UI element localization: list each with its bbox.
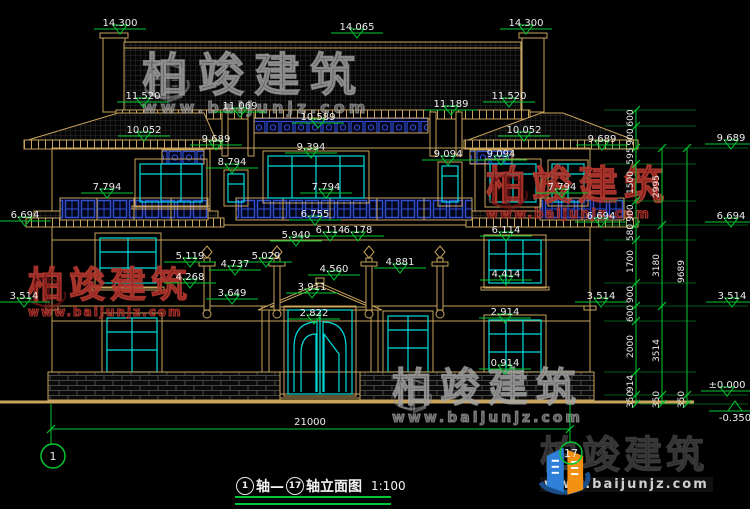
elevation-value: 11.069 — [223, 101, 258, 112]
dim-chain: 299531803514350 — [652, 144, 666, 408]
dim-chain-label: 3180 — [652, 254, 662, 277]
elevation-marker: 14.300 — [500, 18, 552, 34]
drawing-scale: 1:100 — [371, 479, 406, 493]
elevation-value: 11.520 — [492, 91, 527, 102]
elevation-value: -0.350 — [719, 413, 750, 424]
overall-dimension-value: 21000 — [294, 417, 326, 428]
elevation-marker: 8.794 — [206, 157, 258, 173]
elevation-value: 3.514 — [718, 291, 747, 302]
title-text-suffix: 轴立面图 — [306, 476, 362, 496]
elevation-marker: 9.394 — [285, 142, 337, 158]
elevation-value: 7.794 — [312, 182, 341, 193]
elevation-value: 14.300 — [103, 18, 138, 29]
elevation-value: 3.514 — [587, 291, 616, 302]
elevation-marker: 3.514 — [706, 291, 750, 307]
dim-chain-label: 3514 — [652, 339, 662, 362]
elevation-value: 6.114 — [492, 225, 521, 236]
elevation-value: 6.694 — [717, 211, 746, 222]
elevation-value: 5.119 — [176, 251, 205, 262]
elevation-marker: -0.350 — [709, 401, 750, 424]
dim-chain-label: 350 — [626, 391, 636, 408]
elevation-marker: 3.649 — [206, 288, 258, 304]
dim-chain-label: 900 — [626, 204, 636, 221]
elevation-value: 10.589 — [301, 112, 336, 123]
elevation-marker: 3.514 — [575, 291, 627, 307]
elevation-value: 3.649 — [218, 288, 247, 299]
elevation-value: 10.052 — [507, 125, 542, 136]
elevation-value: 7.794 — [548, 182, 577, 193]
elevation-marker: 11.520 — [483, 91, 535, 107]
axis-bubble-start: 1 — [236, 477, 254, 495]
elevation-value: 9.094 — [434, 149, 463, 160]
elevation-value: 5.940 — [282, 230, 311, 241]
elevation-value: ±0.000 — [708, 380, 745, 391]
elevation-marker: 6.694 — [705, 211, 750, 227]
elevation-value: 7.794 — [93, 182, 122, 193]
elevation-value: 4.268 — [176, 272, 205, 283]
dim-chain: 9689350 — [677, 144, 691, 408]
elevation-marker: 6.694 — [575, 211, 627, 227]
dim-chain: 600900595150090058017009006002000914350 — [626, 106, 640, 408]
elevation-value: 4.414 — [492, 269, 521, 280]
dim-chain-label: 914 — [626, 375, 636, 392]
elevation-value: 2.822 — [300, 308, 329, 319]
elevation-marker: 4.881 — [374, 257, 426, 273]
elevation-value: 5.029 — [252, 251, 281, 262]
elevation-marker: 9.689 — [705, 133, 750, 149]
dim-chain-label: 1500 — [626, 171, 636, 194]
elevation-marker: 2.822 — [288, 308, 340, 324]
elevation-marker: 7.794 — [300, 182, 352, 198]
dim-chain-label: 9689 — [677, 260, 687, 283]
elevation-value: 14.300 — [509, 18, 544, 29]
axis-bubble-label: 1 — [50, 450, 57, 463]
elevation-value: 3.911 — [298, 282, 327, 293]
title-underline — [235, 496, 391, 505]
elevation-marker: 3.514 — [0, 291, 50, 307]
axis-bubble-label: 17 — [564, 447, 578, 460]
dim-chain-label: 2995 — [652, 175, 662, 198]
elevation-value: 9.689 — [202, 134, 231, 145]
elevation-marker: 0.914 — [479, 358, 531, 374]
elevation-value: 9.394 — [297, 142, 326, 153]
elevation-marker: 6.694 — [0, 210, 51, 226]
elevation-value: 11.520 — [126, 91, 161, 102]
elevation-marker: 11.069 — [214, 101, 266, 117]
dim-chain-label: 600 — [626, 109, 636, 126]
elevation-marker: 7.794 — [81, 182, 133, 198]
elevation-value: 11.189 — [434, 99, 469, 110]
dim-chain-label: 595 — [626, 147, 636, 164]
elevation-value: 14.065 — [340, 22, 375, 33]
dim-chain-label: 600 — [626, 305, 636, 322]
axis-bubble: 17 — [560, 404, 582, 464]
elevation-marker: 9.689 — [576, 134, 628, 150]
elevation-value: 9.689 — [717, 133, 746, 144]
elevation-marker: 10.589 — [292, 112, 344, 128]
elevation-marker: ±0.000 — [701, 380, 750, 396]
dim-chain-label: 900 — [626, 128, 636, 145]
elevation-value: 4.737 — [221, 259, 250, 270]
elevation-marker: 9.094 — [422, 149, 474, 165]
elevation-marker: 9.689 — [190, 134, 242, 150]
elevation-marker: 10.052 — [118, 125, 170, 141]
elevation-marker: 6.755 — [289, 209, 341, 225]
elevation-marker: 6.114 — [480, 225, 532, 241]
elevation-marker: 9.094 — [475, 149, 527, 165]
elevation-value: 4.881 — [386, 257, 415, 268]
elevation-value: 9.689 — [588, 134, 617, 145]
dim-chain-label: 350 — [652, 391, 662, 408]
axis-bubble: 1 — [41, 404, 65, 468]
dim-chain-label: 900 — [626, 286, 636, 303]
elevation-marker: 14.065 — [331, 22, 383, 38]
axis-bubble-end: 17 — [286, 477, 304, 495]
elevation-value: 2.914 — [491, 307, 520, 318]
overall-dimension: 21000 — [47, 417, 574, 433]
elevation-marker: 4.268 — [164, 272, 216, 288]
dim-chain-label: 580 — [626, 224, 636, 241]
elevation-marker: 2.914 — [479, 307, 531, 323]
elevation-marker: 7.794 — [536, 182, 588, 198]
elevation-value: 0.914 — [491, 358, 520, 369]
elevation-marker: 5.119 — [164, 251, 216, 267]
elevation-marker: 3.911 — [286, 282, 338, 298]
cad-elevation-screenshot: 柏竣建筑 www.baijunjz.com 柏竣建筑 www.baijunjz.… — [0, 0, 750, 509]
elevation-value: 10.052 — [127, 125, 162, 136]
dim-chain-label: 350 — [677, 391, 687, 408]
elevation-value: 6.755 — [301, 209, 330, 220]
elevation-marker: 4.414 — [480, 269, 532, 285]
dimension-overlay: 6009005951500900580170090060020009143502… — [0, 0, 750, 509]
elevation-marker: 4.560 — [308, 264, 360, 280]
dim-chain-label: 2000 — [626, 335, 636, 358]
elevation-value: 6.694 — [587, 211, 616, 222]
elevation-marker: 11.520 — [117, 91, 169, 107]
elevation-value: 9.094 — [487, 149, 516, 160]
elevation-value: 3.514 — [10, 291, 39, 302]
title-text-mid: 轴— — [256, 476, 284, 496]
elevation-marker: 5.940 — [270, 230, 322, 246]
dim-chain-label: 1700 — [626, 250, 636, 273]
drawing-title: 1 轴— 17 轴立面图 1:100 — [234, 476, 406, 496]
elevation-marker: 11.189 — [425, 99, 477, 115]
elevation-marker: 14.300 — [94, 18, 146, 34]
elevation-value: 6.114 — [316, 225, 345, 236]
elevation-marker: 10.052 — [498, 125, 550, 141]
elevation-value: 8.794 — [218, 157, 247, 168]
elevation-value: 6.694 — [11, 210, 40, 221]
elevation-value: 6.178 — [344, 225, 373, 236]
elevation-value: 4.560 — [320, 264, 349, 275]
